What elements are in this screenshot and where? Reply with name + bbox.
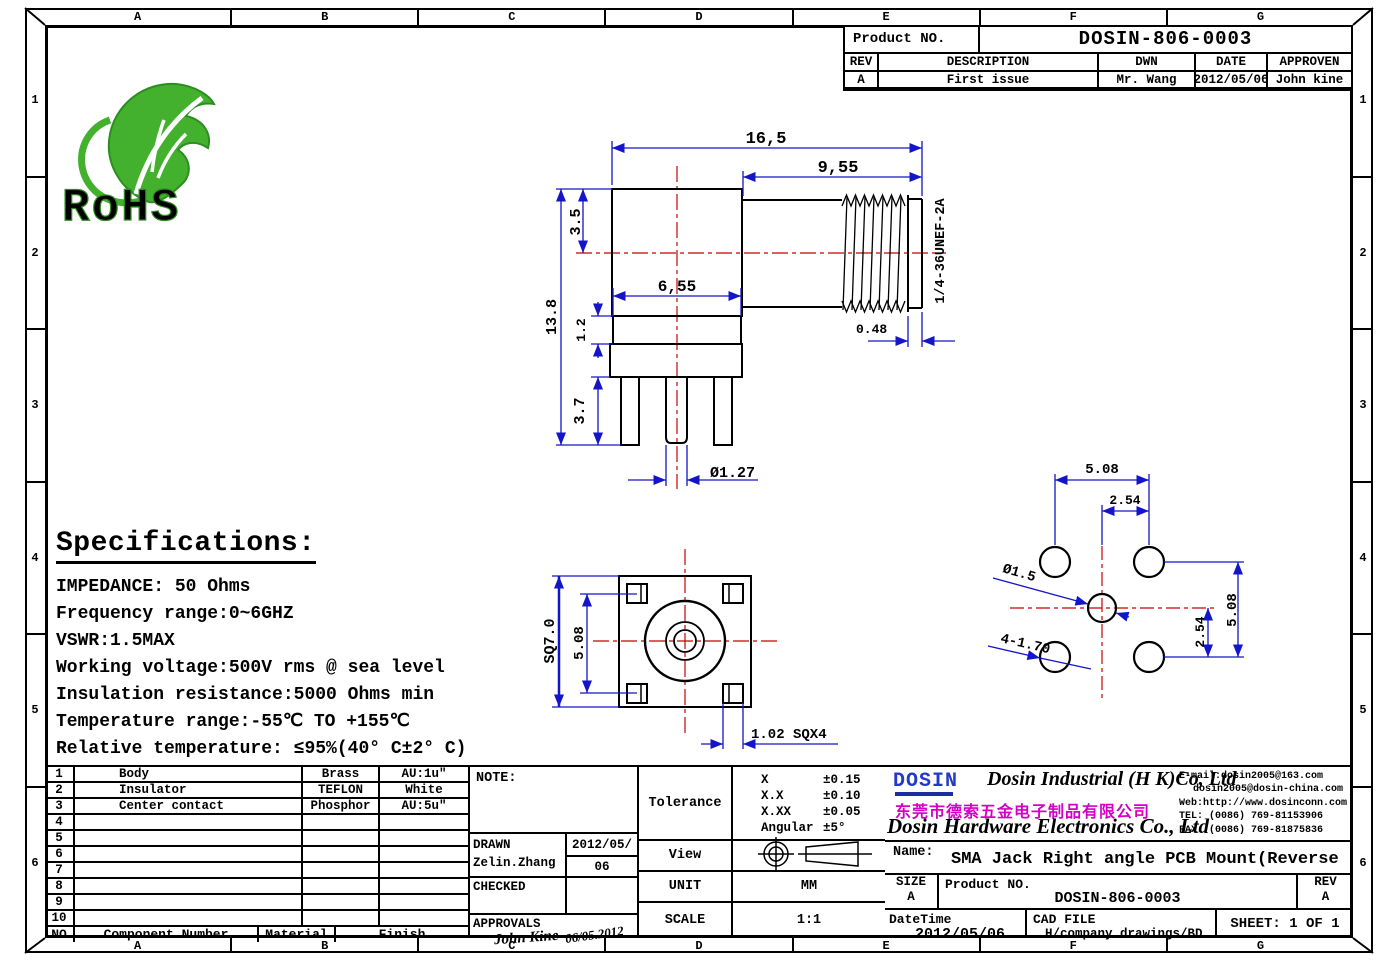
zone-strip-top: A B C D E F G: [45, 8, 1353, 25]
zone-col-label: C: [417, 8, 604, 25]
bom-row: 5: [45, 831, 468, 847]
company-tel: TEL: (0086) 769-81153906: [1179, 810, 1351, 823]
bom-no: 10: [45, 911, 75, 925]
zone-col-label: F: [979, 8, 1166, 25]
tolerance-key: X: [761, 772, 823, 788]
dosin-logo: DOSIN: [893, 770, 958, 793]
cad-file-label: CAD FILE: [1033, 912, 1095, 927]
bom-finish: AU:1u": [380, 767, 468, 781]
bom-no-header: NO: [45, 927, 75, 942]
zone-row-label: 3: [25, 328, 45, 481]
bom-no: 5: [45, 831, 75, 845]
bom-table: 1BodyBrassAU:1u" 2InsulatorTEFLONWhite 3…: [45, 765, 470, 938]
zone-strip-right: 1 2 3 4 5 6: [1353, 25, 1373, 938]
tb-rev-label: REV: [1314, 875, 1337, 889]
dwn-cell: Mr. Wang: [1099, 72, 1196, 87]
bom-material: TEFLON: [303, 783, 380, 797]
size-value: A: [907, 890, 915, 904]
bom-row: 7: [45, 863, 468, 879]
spec-line: VSWR:1.5MAX: [56, 628, 536, 655]
bom-component: Body: [75, 767, 303, 781]
tolerance-label: Tolerance: [639, 767, 733, 839]
bom-row: 3Center contactPhosphorAU:5u": [45, 799, 468, 815]
zone-col-label: A: [45, 8, 230, 25]
name-row: Name: SMA Jack Right angle PCB Mount(Rev…: [885, 842, 1353, 875]
zone-row-label: 3: [1353, 328, 1373, 481]
approven-header: APPROVEN: [1268, 54, 1351, 71]
unit-label: UNIT: [639, 872, 733, 901]
bom-finish-header: Finish: [336, 927, 468, 942]
part-name-value: SMA Jack Right angle PCB Mount(Reverse: [951, 850, 1339, 869]
zone-row-label: 2: [1353, 176, 1373, 329]
bom-material: Phosphor: [303, 799, 380, 813]
zone-col-label: E: [792, 8, 979, 25]
zone-row-label: 5: [25, 633, 45, 786]
scale-value: 1:1: [733, 903, 885, 938]
company-web: Web:http://www.dosinconn.com: [1179, 797, 1351, 810]
rev-cell: A: [845, 72, 879, 87]
bom-row: 6: [45, 847, 468, 863]
rohs-logo: RoHS: [52, 42, 242, 232]
specifications-block: Specifications: IMPEDANCE: 50 Ohms Frequ…: [56, 528, 536, 763]
zone-strip-left: 1 2 3 4 5 6: [25, 25, 45, 938]
zone-row-label: 2: [25, 176, 45, 329]
bom-row: 10: [45, 911, 468, 927]
product-no-value: DOSIN-806-0003: [980, 27, 1351, 52]
bom-finish: White: [380, 783, 468, 797]
tolerance-val: ±5°: [823, 820, 846, 836]
tolerance-val: ±0.05: [823, 804, 861, 820]
size-row: SIZE A Product NO. DOSIN-806-0003 REV A: [885, 875, 1353, 910]
bom-no: 8: [45, 879, 75, 893]
bom-no: 6: [45, 847, 75, 861]
bom-no: 7: [45, 863, 75, 877]
zone-row-label: 6: [1353, 786, 1373, 939]
view-label: View: [639, 841, 733, 870]
bom-component-header: Component Number: [75, 927, 259, 942]
bom-finish: AU:5u": [380, 799, 468, 813]
datetime-label: DateTime: [889, 912, 951, 927]
drawn-date-1: 2012/05/: [567, 834, 637, 857]
bom-row: 8: [45, 879, 468, 895]
bom-row: 2InsulatorTEFLONWhite: [45, 783, 468, 799]
specifications-title: Specifications:: [56, 528, 316, 564]
bom-no: 3: [45, 799, 75, 813]
date-cell: 2012/05/06: [1196, 72, 1268, 87]
bom-no: 4: [45, 815, 75, 829]
tolerance-val: ±0.10: [823, 788, 861, 804]
bom-row: 4: [45, 815, 468, 831]
datetime-value: 2012/05/06: [915, 926, 1005, 943]
bom-no: 2: [45, 783, 75, 797]
bom-component: Center contact: [75, 799, 303, 813]
scale-label: SCALE: [639, 903, 733, 938]
dosin-logo-underline: [895, 792, 953, 796]
company-contact: E-mail:dosin2005@163.com dosin2005@dosin…: [1179, 770, 1351, 837]
tolerance-key: Angular: [761, 820, 823, 836]
revision-row: A First issue Mr. Wang 2012/05/06 John k…: [845, 72, 1351, 89]
approvals-row: APPROVALS John Kine 06/05.2012: [470, 915, 637, 938]
drawn-row: DRAWN Zelin.Zhang 2012/05/ 06: [470, 834, 637, 878]
description-header: DESCRIPTION: [879, 54, 1099, 71]
bom-material: Brass: [303, 767, 380, 781]
zone-col-label: B: [230, 8, 417, 25]
tb-product-no-value: DOSIN-806-0003: [939, 890, 1296, 907]
tolerance-val: ±0.15: [823, 772, 861, 788]
name-label: Name:: [893, 845, 934, 860]
tolerance-block: Tolerance X±0.15 X.X±0.10 X.XX±0.05 Angu…: [637, 765, 885, 938]
zone-row-label: 5: [1353, 633, 1373, 786]
date-header: DATE: [1196, 54, 1268, 71]
revision-table: Product NO. DOSIN-806-0003 REV DESCRIPTI…: [843, 25, 1353, 91]
product-no-label: Product NO.: [845, 27, 980, 52]
approven-cell: John kine: [1268, 72, 1351, 87]
zone-row-label: 1: [1353, 25, 1373, 176]
size-label: SIZE: [896, 875, 926, 889]
zone-col-label: G: [1166, 8, 1353, 25]
company-email-1: E-mail:dosin2005@163.com: [1179, 770, 1351, 783]
bom-no: 9: [45, 895, 75, 909]
bom-component: Insulator: [75, 783, 303, 797]
tb-rev-value: A: [1322, 890, 1330, 904]
bom-material-header: Material: [259, 927, 336, 942]
bom-header-row: NOComponent NumberMaterialFinish: [45, 927, 468, 942]
unit-value: MM: [733, 872, 885, 901]
drawn-name: Zelin.Zhang: [473, 856, 556, 870]
spec-line: Working voltage:500V rms @ sea level: [56, 655, 536, 682]
zone-row-label: 6: [25, 786, 45, 939]
datetime-row: DateTime 2012/05/06 CAD FILE H/company d…: [885, 910, 1353, 938]
zone-col-label: D: [604, 938, 791, 953]
spec-line: IMPEDANCE: 50 Ohms: [56, 574, 536, 601]
title-block: DOSIN Dosin Industrial (H K)Co, Ltd 东莞市德…: [885, 765, 1353, 938]
zone-row-label: 4: [25, 481, 45, 634]
sheet-value: SHEET: 1 OF 1: [1217, 910, 1353, 938]
spec-line: Frequency range:0~6GHZ: [56, 601, 536, 628]
company-email-2: dosin2005@dosin-china.com: [1179, 783, 1351, 796]
sign-block: NOTE: DRAWN Zelin.Zhang 2012/05/ 06 CHEC…: [470, 765, 637, 938]
company-fax: FAX: (0086) 769-81875836: [1179, 824, 1351, 837]
dwn-header: DWN: [1099, 54, 1196, 71]
view-symbol-cell: [733, 841, 885, 870]
drawn-date-2: 06: [567, 857, 637, 876]
zone-row-label: 4: [1353, 481, 1373, 634]
bom-row: 9: [45, 895, 468, 911]
engineering-drawing-page: A B C D E F G A B C D E F G 1 2 3 4 5 6 …: [0, 0, 1397, 962]
bom-no: 1: [45, 767, 75, 781]
checked-label: CHECKED: [470, 878, 567, 913]
zone-col-label: D: [604, 8, 791, 25]
tolerance-key: X.X: [761, 788, 823, 804]
zone-row-label: 1: [25, 25, 45, 176]
cad-file-value: H/company drawings/BD: [1045, 927, 1203, 941]
rev-header: REV: [845, 54, 879, 71]
note-label: NOTE:: [470, 767, 637, 834]
tolerance-key: X.XX: [761, 804, 823, 820]
bom-row: 1BodyBrassAU:1u": [45, 767, 468, 783]
company-name-en2: Dosin Hardware Electronics Co., Ltd: [887, 814, 1209, 839]
checked-row: CHECKED: [470, 878, 637, 915]
drawn-label: DRAWN: [473, 838, 511, 852]
rohs-label: RoHS: [62, 182, 180, 232]
spec-line: Relative temperature: ≤95%(40° C±2° C): [56, 736, 536, 763]
description-cell: First issue: [879, 72, 1099, 87]
company-cell: DOSIN Dosin Industrial (H K)Co, Ltd 东莞市德…: [885, 767, 1353, 842]
spec-line: Temperature range:-55℃ TO +155℃: [56, 709, 536, 736]
spec-line: Insulation resistance:5000 Ohms min: [56, 682, 536, 709]
